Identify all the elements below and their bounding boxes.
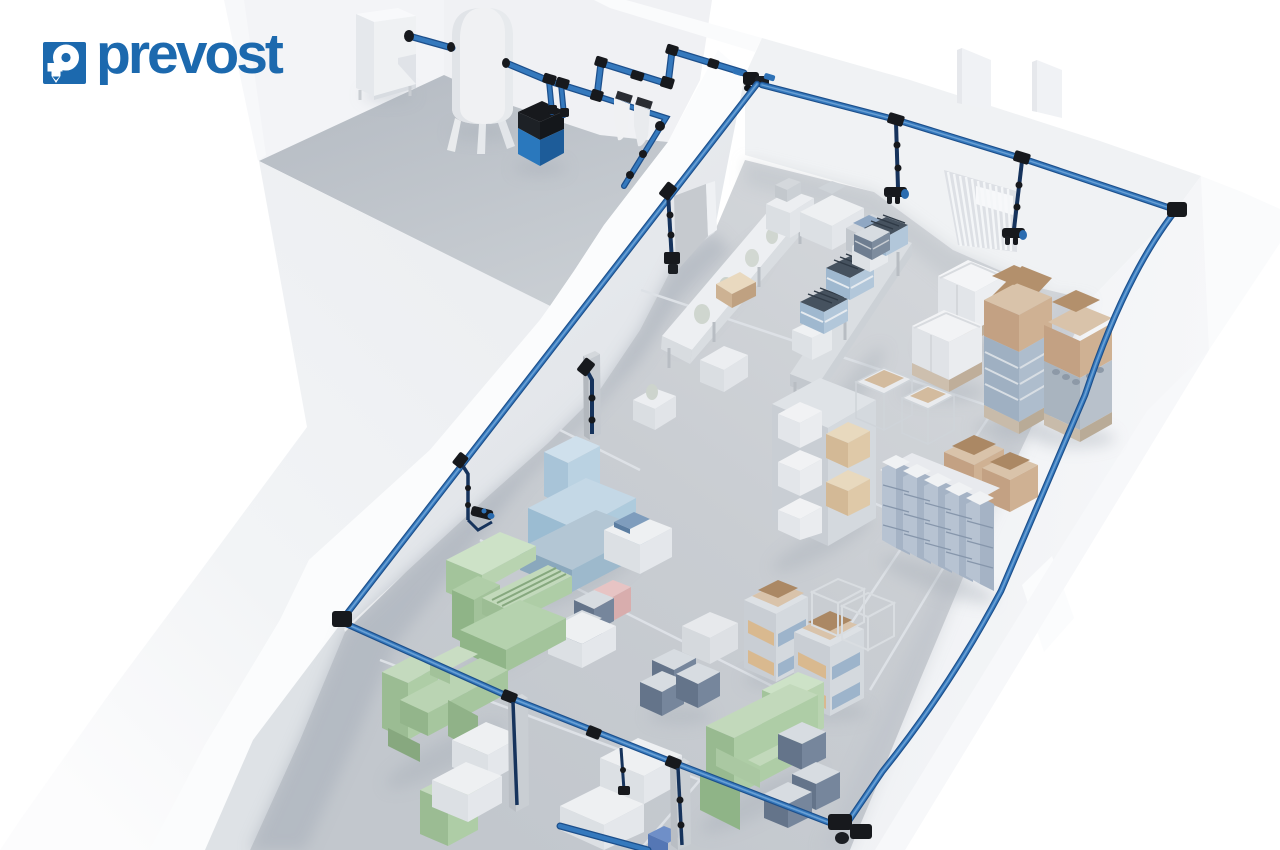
svg-text:prevost: prevost [96,22,284,86]
